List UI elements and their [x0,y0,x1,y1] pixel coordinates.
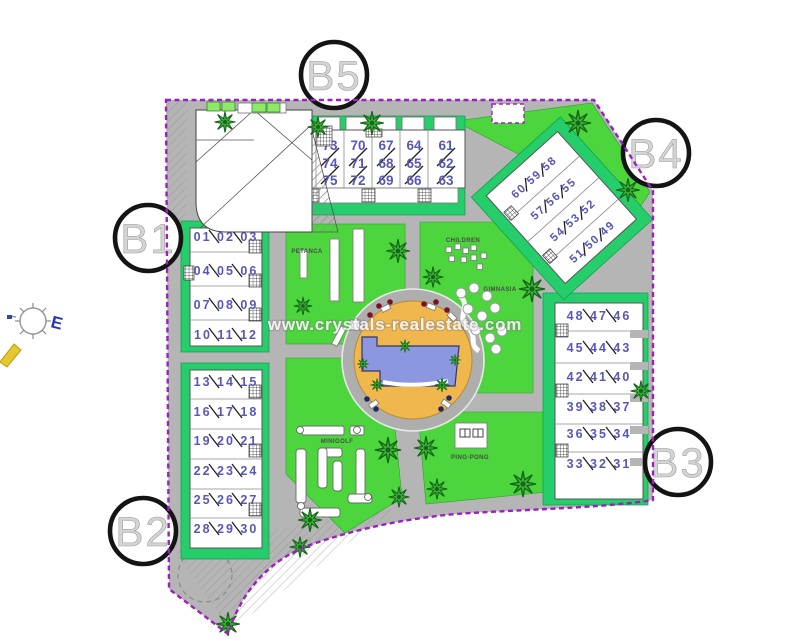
tree-icon [216,612,239,635]
unit-number: 63 [438,173,454,188]
unit-row: 28 29 30 [194,522,259,536]
block-marker-b2[interactable]: B2 [110,498,176,564]
block-b1: 01 02 03 04 05 06 07 08 09 10 11 12 [181,221,269,352]
tree-icon [510,471,536,497]
compass: E [0,303,65,367]
watermark: www.crystals-realestate.com [267,315,522,334]
tree-icon [298,508,321,531]
unit-row: 10 11 12 [194,328,258,342]
compass-east-label: E [49,312,65,333]
block-marker-b4[interactable]: B4 [623,120,689,186]
tree-icon [389,487,410,508]
unit-row: 39 38 37 [567,400,632,414]
tree-icon [399,340,412,353]
tree-icon [294,297,312,315]
svg-text:B3: B3 [650,439,705,486]
unit-row: 22 23 24 [194,464,259,478]
unit-row: 48 47 46 [567,309,632,323]
tree-icon [565,110,591,136]
pingpong-area: PING-PONG [451,423,489,461]
tree-icon [423,267,444,288]
unit-number: 70 [350,138,365,153]
unit-row: 19 20 21 [194,434,259,448]
tree-icon [360,111,383,134]
block-marker-b3[interactable]: B3 [645,429,711,495]
unit-number: 66 [406,173,422,188]
reserved-plot [492,104,524,123]
unit-number: 65 [406,156,422,171]
tree-icon [215,112,236,133]
unit-number: 74 [322,156,338,171]
unit-row: 04 05 06 [194,264,259,278]
tree-icon [449,354,461,366]
tree-icon [631,381,652,402]
unit-row: 07 08 09 [194,298,259,312]
unit-row: 42 41 40 [567,370,632,384]
unit-number: 71 [350,156,366,171]
svg-text:B5: B5 [306,52,361,99]
tree-icon [371,379,384,392]
block-b3: 48 47 46 45 44 43 42 41 40 39 38 37 36 3… [543,293,648,505]
unit-number: 68 [378,156,394,171]
petanca-label: PETANCA [291,249,323,255]
unit-number: 69 [378,173,393,188]
tree-icon [357,358,369,370]
block-marker-b5[interactable]: B5 [301,42,367,108]
block-b2: 13 14 15 16 17 18 19 20 21 22 23 24 25 2… [181,363,269,559]
unit-number: 72 [350,173,365,188]
tree-icon [308,117,329,138]
unit-number: 61 [438,138,454,153]
minigolf-label: MINIGOLF [321,439,354,445]
unit-row: 16 17 18 [194,405,259,419]
svg-text:B4: B4 [628,130,683,177]
masterplan-canvas: PETANCA CHILDREN GIMNASIA MINIGOLF [0,0,800,640]
pencil-logo [0,344,21,367]
block-marker-b1[interactable]: B1 [115,205,181,271]
unit-number: 64 [406,138,422,153]
unit-row: 25 26 27 [194,493,259,507]
tree-icon [427,479,448,500]
unit-row: 45 44 43 [567,341,632,355]
unit-row: 33 32 31 [567,457,632,471]
tree-icon [290,537,311,558]
tree-icon [435,378,449,392]
unit-row: 36 35 34 [567,427,632,441]
unit-number: 62 [438,156,453,171]
tree-icon [386,239,409,262]
unit-number: 67 [378,138,393,153]
children-label: CHILDREN [446,238,480,244]
tree-icon [414,436,437,459]
unit-row: 13 14 15 [194,375,259,389]
tree-icon [519,276,545,302]
svg-text:B2: B2 [115,508,170,555]
tree-icon [375,437,401,463]
pingpong-label: PING-PONG [451,455,489,461]
